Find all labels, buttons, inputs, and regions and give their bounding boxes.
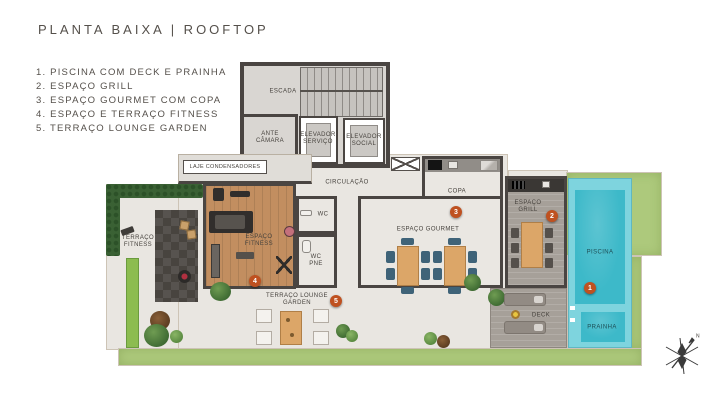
plant [346,330,358,342]
tree [210,282,231,301]
barbell-rack [211,244,220,278]
grass-bottom-strip [118,348,642,366]
bush [170,330,183,343]
hedge-top [106,184,203,198]
stair-divider [300,90,383,92]
lounge-chair [313,309,329,323]
gourmet-chair [401,287,414,294]
treadmill-belt [215,215,245,229]
plant [464,274,481,291]
grill-chair [511,228,519,238]
floor-plan: PISCINA PRAINHA ESCADA ANTE CÂMARA ELEVA… [0,0,720,403]
table-decor [290,333,294,337]
gourmet-chair [401,238,414,245]
pool-lounger [504,321,546,334]
pool-step [570,306,575,310]
crate [186,229,196,239]
grill-table [521,222,543,268]
crate [179,220,189,230]
label-prainha: PRAINHA [587,325,616,332]
gourmet-chair [386,268,395,280]
grill-chair [511,243,519,253]
label-copa: COPA [448,189,466,196]
label-espaco-fitness: ESPAÇO FITNESS [242,234,276,248]
gourmet-room [358,196,503,288]
label-wc-pne: WC PNE [308,254,324,268]
wc-pne-toilet [302,240,311,253]
label-circulacao: CIRCULAÇÃO [325,180,368,187]
label-deck: DECK [532,313,550,320]
gourmet-table [444,246,466,286]
gourmet-chair [468,251,477,263]
weight-plate [284,226,295,237]
lounge-chair [256,309,272,323]
marker-5: 5 [330,295,342,307]
label-espaco-gourmet: ESPAÇO GOURMET [397,227,460,234]
gourmet-chair [433,268,442,280]
gourmet-chair [433,251,442,263]
rowing-machine [230,191,250,197]
lounge-chair [256,331,272,345]
marker-2: 2 [546,210,558,222]
side-table [511,310,520,319]
pool-lounger [504,293,546,306]
gourmet-chair [386,251,395,263]
sink [448,161,458,169]
tree [144,324,169,347]
exercise-bike [213,188,224,201]
planter-strip [126,258,139,348]
hedge-left [106,184,120,256]
cooktop [428,160,442,170]
compass-north-label: N [696,334,700,341]
label-laje-condensadores: LAJE CONDENSADORES [183,160,267,174]
gourmet-table [397,246,419,286]
marker-1: 1 [584,282,596,294]
fridge [480,160,498,171]
bush [437,335,450,348]
grill-chair [545,228,553,238]
pool-water [575,190,625,304]
workout-bench [236,252,254,259]
gourmet-chair [448,238,461,245]
marker-4: 4 [249,275,261,287]
label-wc: WC [318,212,329,219]
table-decor [286,318,290,322]
lounge-chair [313,331,329,345]
label-espaco-grill: ESPAÇO GRILL [512,200,544,214]
gym-fan [276,256,292,274]
pool-step [570,318,575,322]
staircase [300,67,383,117]
label-elevador-social: ELEVADOR SOCIAL [346,134,382,148]
gourmet-chair [421,268,430,280]
gourmet-chair [421,251,430,263]
plant-pot [178,270,191,283]
label-elevador-servico: ELEVADOR SERVIÇO [300,132,336,146]
wc-sink [300,210,312,216]
gourmet-chair [448,287,461,294]
lounge-table [280,311,302,345]
marker-3: 3 [450,206,462,218]
label-ante-camara: ANTE CÂMARA [253,131,287,145]
shaft-hatch [391,157,420,171]
grill-sink [542,181,550,188]
grill-chair [511,258,519,268]
fitness-terrace-tiles [155,210,198,302]
grill-chair [545,243,553,253]
grill-grate [512,181,525,189]
label-terraco-fitness: TERRAÇO FITNESS [119,235,157,249]
bush [424,332,437,345]
label-piscina: PISCINA [587,250,614,257]
grill-chair [545,258,553,268]
label-escada: ESCADA [269,89,296,96]
tree [488,289,505,306]
page: PLANTA BAIXA | ROOFTOP 1. PISCINA COM DE… [0,0,720,403]
label-terraco-lounge-garden: TERRAÇO LOUNGE GARDEN [266,293,328,307]
